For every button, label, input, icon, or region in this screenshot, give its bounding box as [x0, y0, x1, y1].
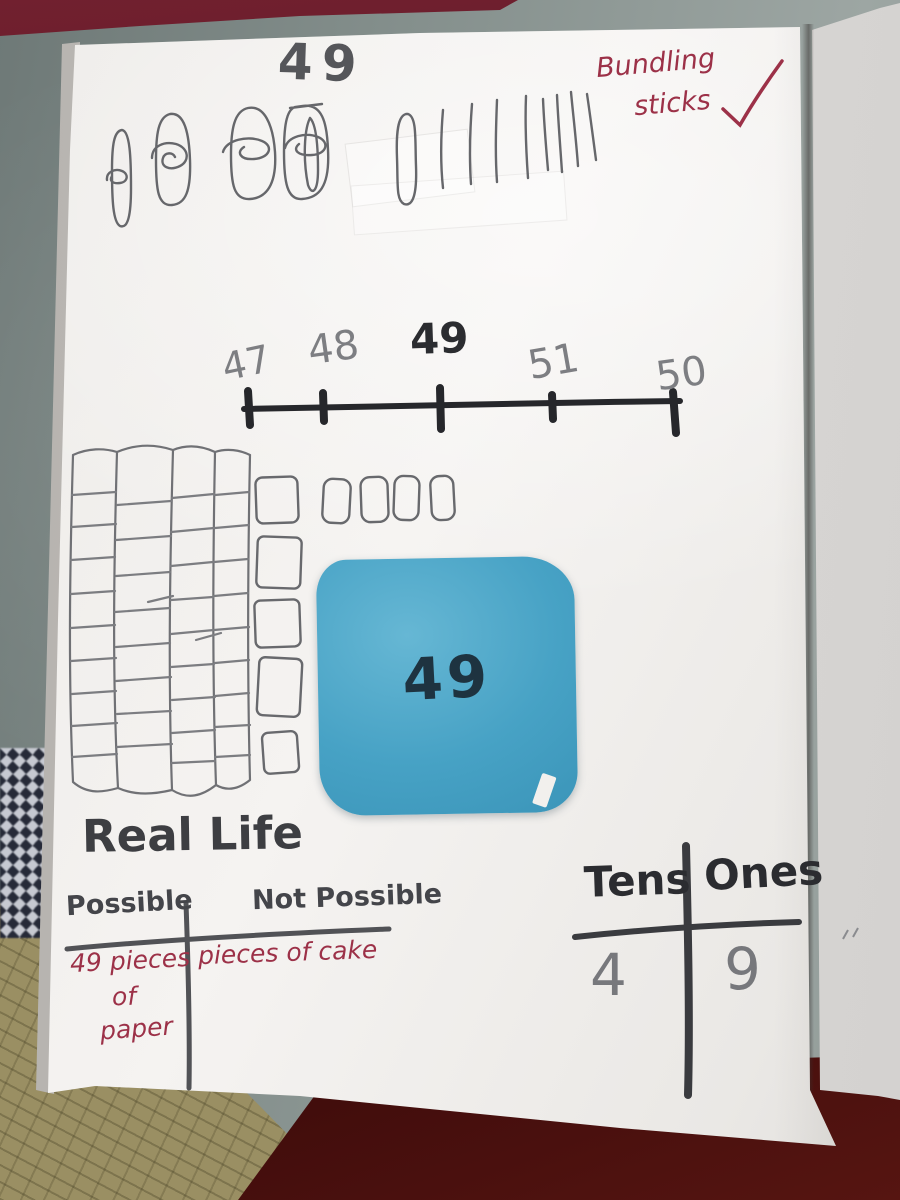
- number-line-axis: [244, 401, 680, 409]
- possible-entry-line1: 49 pieces: [69, 945, 190, 976]
- rod-segments: [71, 492, 250, 763]
- teacher-checkmark-icon: [723, 61, 782, 125]
- number-line-label-47: 47: [219, 339, 274, 386]
- possible-column-header: Possible: [65, 887, 193, 921]
- sticky-note-number: 49: [401, 642, 493, 715]
- stray-pencil-mark: [843, 928, 858, 939]
- tens-column-header: Tens: [583, 858, 691, 904]
- number-line-label-48: 48: [305, 325, 361, 372]
- possible-entry-line2: of: [112, 984, 137, 1010]
- bundle-3: [223, 108, 275, 199]
- bundle-4: [284, 104, 328, 199]
- number-line-label-49: 49: [409, 317, 469, 361]
- rod-outlines: [70, 446, 250, 796]
- blue-sticky-note: 49: [316, 556, 578, 816]
- stick-bundles-drawing: [107, 92, 596, 226]
- ones-column-header: Ones: [703, 849, 824, 897]
- number-line-label-50: 50: [653, 351, 709, 398]
- page-heading-number: 49: [277, 36, 366, 89]
- not-possible-entry: pieces of cake: [198, 937, 378, 968]
- teacher-note-line2: sticks: [633, 87, 712, 121]
- bundle-1: [107, 130, 131, 226]
- single-sticks: [441, 92, 596, 188]
- real-life-heading: Real Life: [82, 810, 304, 859]
- possible-entry-line3: paper: [99, 1013, 173, 1043]
- tens-value: 4: [590, 946, 627, 1004]
- bundle-2: [152, 114, 190, 205]
- not-possible-column-header: Not Possible: [252, 881, 443, 915]
- real-life-table-divider: [186, 903, 189, 1088]
- number-line-label-51: 51: [525, 338, 582, 386]
- number-line-drawing: [244, 388, 680, 433]
- ones-value: 9: [724, 940, 761, 998]
- sticky-note-corner-fold: [532, 773, 557, 808]
- single-stick-outlined: [397, 114, 416, 204]
- photo-of-workbook-page: 49 Bundling sticks 47 48 49 51 50 Real L…: [0, 0, 900, 1200]
- base-ten-rods-drawing: [70, 446, 250, 796]
